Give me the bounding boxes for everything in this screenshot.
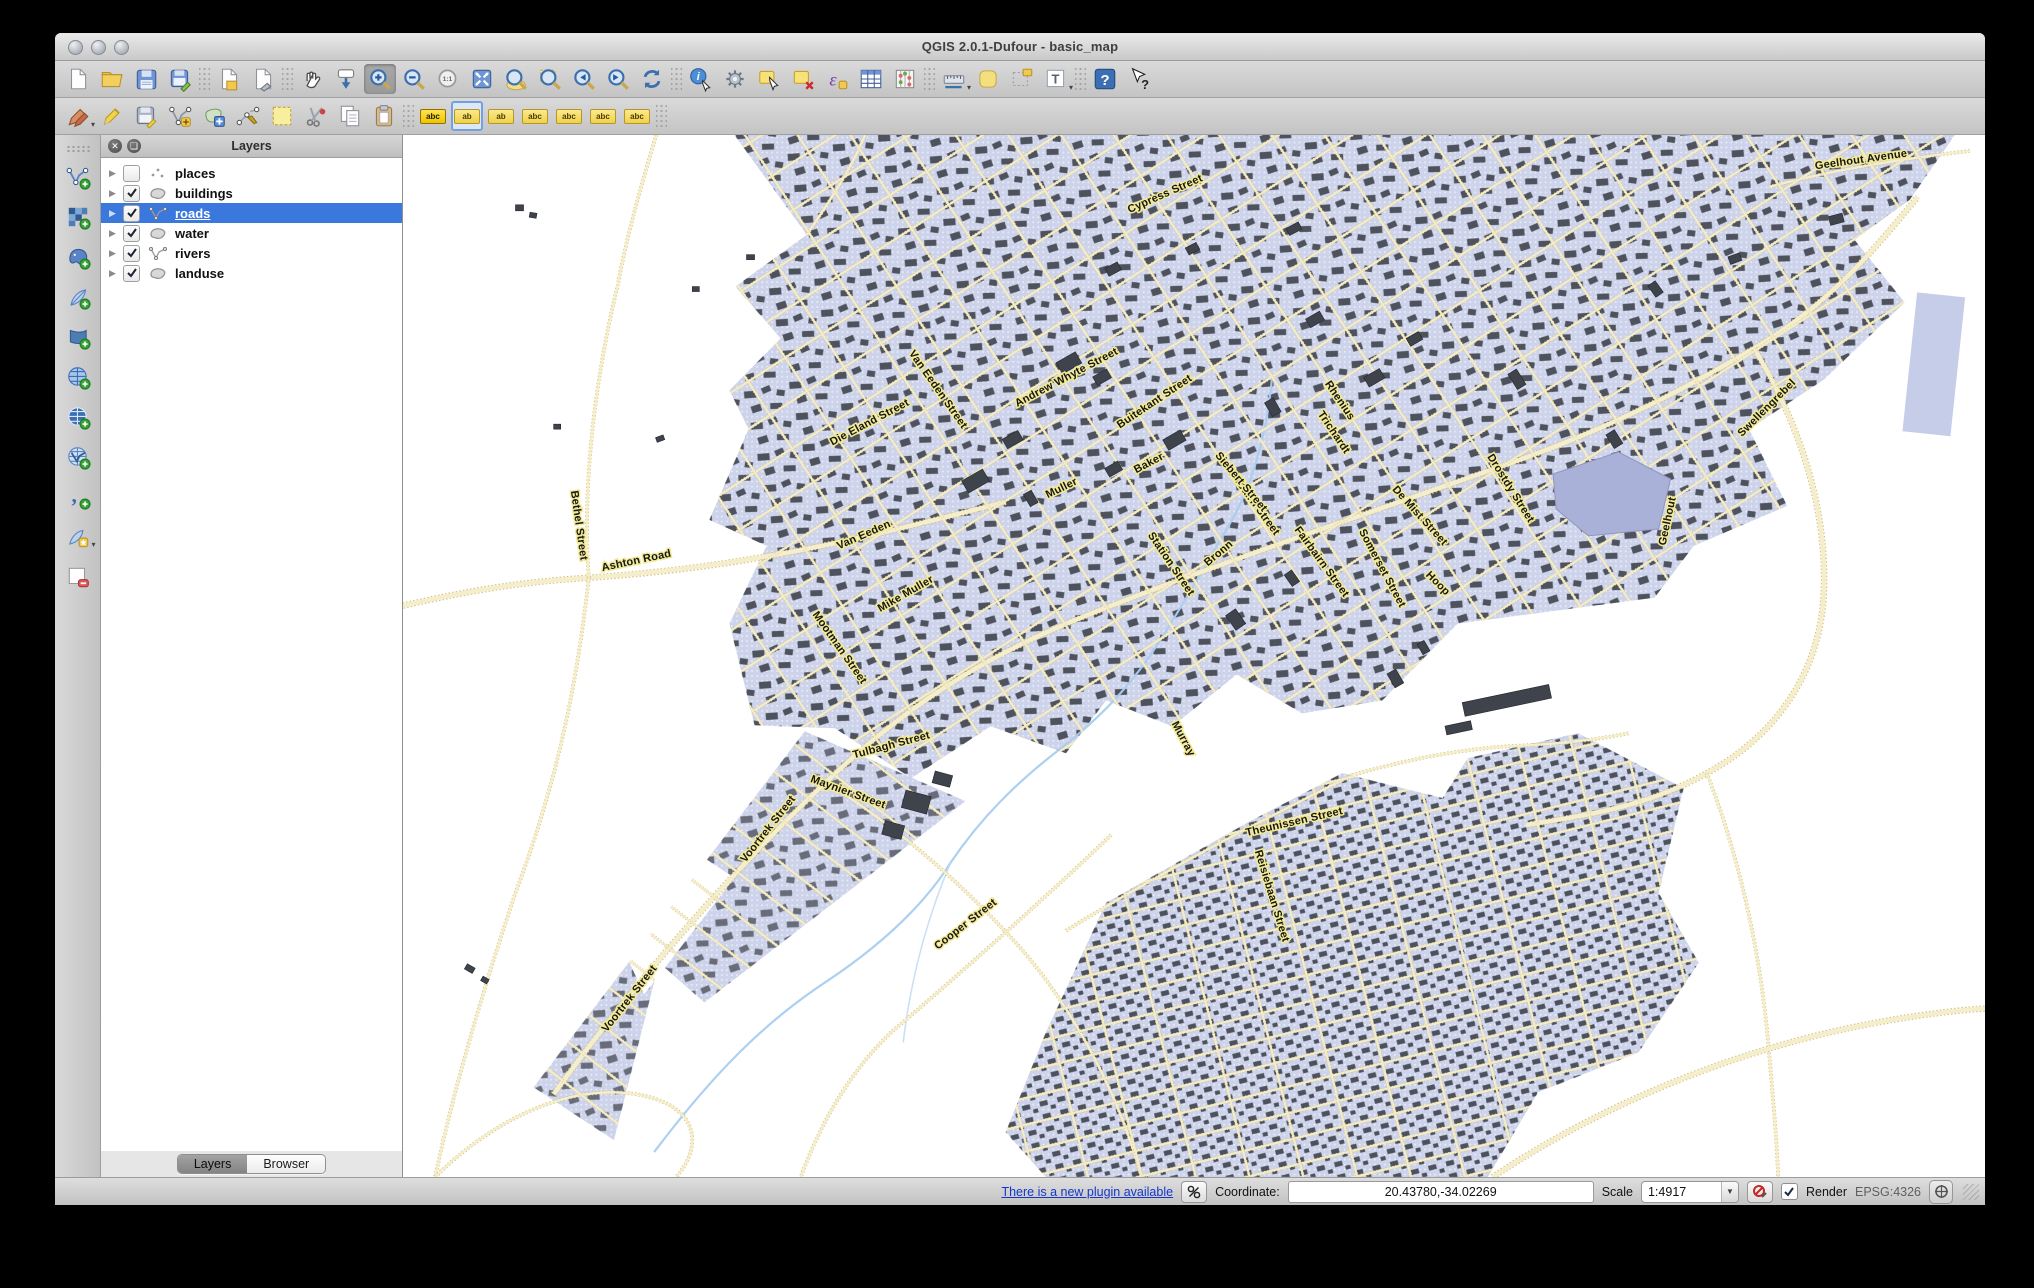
- zoom-native-icon[interactable]: 1:1: [432, 64, 464, 94]
- layer-visibility-checkbox[interactable]: [123, 185, 140, 202]
- layer-row-water[interactable]: ▶water: [101, 223, 402, 243]
- toolbar-separator: [924, 66, 935, 92]
- toggle-editing-icon[interactable]: [96, 101, 128, 131]
- layer-name: rivers: [175, 246, 210, 261]
- main-toolbar: 1:1iε▾T▾??: [55, 61, 1985, 98]
- svg-text:ε: ε: [829, 70, 837, 90]
- layer-visibility-checkbox[interactable]: [123, 245, 140, 262]
- new-shapefile-layer-icon[interactable]: ▾: [60, 519, 96, 555]
- combo-arrow-icon[interactable]: ▼: [1721, 1182, 1738, 1202]
- digitizing-label-toolbar: ▾abcabababcabcabcabc: [55, 98, 1985, 135]
- svg-text:?: ?: [1141, 77, 1149, 92]
- move-feature-icon[interactable]: [198, 101, 230, 131]
- current-edits-icon[interactable]: ▾: [62, 101, 94, 131]
- labeling-options-icon[interactable]: abc: [417, 101, 449, 131]
- measure-icon[interactable]: ▾: [938, 64, 970, 94]
- expand-triangle-icon[interactable]: ▶: [109, 228, 123, 239]
- remove-layer-icon[interactable]: [60, 559, 96, 595]
- zoom-window-button[interactable]: [114, 40, 129, 55]
- zoom-next-icon[interactable]: [602, 64, 634, 94]
- label-properties-icon[interactable]: abc: [621, 101, 653, 131]
- layer-row-rivers[interactable]: ▶rivers: [101, 243, 402, 263]
- toolbar-separator: [656, 103, 667, 129]
- scale-value: 1:4917: [1642, 1185, 1721, 1199]
- manage-layers-toolbar: ,▾: [55, 135, 101, 1177]
- toolbar-separator: [403, 103, 414, 129]
- tab-layers[interactable]: Layers: [178, 1155, 248, 1173]
- expand-triangle-icon[interactable]: ▶: [109, 248, 123, 259]
- node-tool-icon[interactable]: [232, 101, 264, 131]
- scale-combobox[interactable]: 1:4917 ▼: [1641, 1181, 1739, 1203]
- stop-render-icon[interactable]: [1747, 1181, 1773, 1203]
- new-composer-icon[interactable]: [213, 64, 245, 94]
- traffic-lights: [68, 40, 129, 55]
- attribute-table-icon[interactable]: [855, 64, 887, 94]
- layer-tree: ▶places▶buildings▶roads▶water▶rivers▶lan…: [101, 158, 402, 1151]
- layer-visibility-checkbox[interactable]: [123, 165, 140, 182]
- svg-text:1:1: 1:1: [443, 76, 453, 83]
- layer-row-places[interactable]: ▶places: [101, 163, 402, 183]
- layer-name: landuse: [175, 266, 224, 281]
- layer-name: buildings: [175, 186, 233, 201]
- expand-triangle-icon[interactable]: ▶: [109, 208, 123, 219]
- render-label: Render: [1806, 1185, 1847, 1199]
- layer-row-roads[interactable]: ▶roads: [101, 203, 402, 223]
- field-calculator-icon[interactable]: [889, 64, 921, 94]
- crs-status-icon[interactable]: [1929, 1180, 1953, 1204]
- help-icon[interactable]: ?: [1089, 64, 1121, 94]
- layers-dock: ✕ ❏ Layers ▶places▶buildings▶roads▶water…: [101, 135, 403, 1177]
- label-tag-glyph: abc: [624, 109, 650, 124]
- layers-panel-title: Layers: [101, 139, 402, 153]
- toolbar-separator: [1075, 66, 1086, 92]
- close-window-button[interactable]: [68, 40, 83, 55]
- label-tag-glyph: abc: [590, 109, 616, 124]
- label-tag-glyph: abc: [556, 109, 582, 124]
- coordinate-input[interactable]: [1288, 1181, 1594, 1203]
- layer-visibility-checkbox[interactable]: [123, 265, 140, 282]
- copy-features-icon[interactable]: [334, 101, 366, 131]
- expand-triangle-icon[interactable]: ▶: [109, 268, 123, 279]
- polygon-geometry-icon: [147, 186, 169, 200]
- zoom-out-icon[interactable]: [398, 64, 430, 94]
- close-panel-button[interactable]: ✕: [108, 139, 122, 153]
- new-bookmark-icon[interactable]: [972, 64, 1004, 94]
- add-wfs-layer-icon[interactable]: [60, 439, 96, 475]
- save-project-icon[interactable]: [130, 64, 162, 94]
- add-mssql-layer-icon[interactable]: [60, 319, 96, 355]
- add-spatialite-layer-icon[interactable]: [60, 279, 96, 315]
- layer-visibility-checkbox[interactable]: [123, 225, 140, 242]
- toolbar-grip[interactable]: [66, 145, 90, 153]
- toolbar-separator: [199, 66, 210, 92]
- point-geometry-icon: [147, 166, 169, 180]
- polygon-geometry-icon: [147, 266, 169, 280]
- layer-name: places: [175, 166, 215, 181]
- open-project-icon[interactable]: [96, 64, 128, 94]
- pan-to-selection-icon[interactable]: [330, 64, 362, 94]
- add-raster-layer-icon[interactable]: [60, 199, 96, 235]
- add-delimited-text-icon[interactable]: ,: [60, 479, 96, 515]
- delete-selected-icon[interactable]: [266, 101, 298, 131]
- select-features-icon[interactable]: [753, 64, 785, 94]
- label-tag-glyph: abc: [522, 109, 548, 124]
- expand-triangle-icon[interactable]: ▶: [109, 168, 123, 179]
- layers-panel-header: ✕ ❏ Layers: [101, 135, 402, 158]
- text-annotation-icon[interactable]: T▾: [1040, 64, 1072, 94]
- add-wcs-layer-icon[interactable]: [60, 399, 96, 435]
- pan-map-icon[interactable]: [296, 64, 328, 94]
- line-geometry-icon: [147, 246, 169, 260]
- toolbar-separator: [282, 66, 293, 92]
- identify-icon[interactable]: i: [685, 64, 717, 94]
- select-by-expression-icon[interactable]: ε: [821, 64, 853, 94]
- label-tag-glyph: ab: [488, 109, 514, 124]
- float-panel-button[interactable]: ❏: [127, 139, 141, 153]
- expand-triangle-icon[interactable]: ▶: [109, 188, 123, 199]
- title-bar[interactable]: QGIS 2.0.1-Dufour - basic_map: [55, 33, 1985, 61]
- dock-tabs: Layers Browser: [101, 1151, 402, 1177]
- rotate-label-icon[interactable]: ab: [485, 101, 517, 131]
- composer-manager-icon[interactable]: [247, 64, 279, 94]
- window-title: QGIS 2.0.1-Dufour - basic_map: [922, 39, 1119, 54]
- resize-grip[interactable]: [1963, 1184, 1979, 1200]
- svg-text:,: ,: [71, 484, 76, 507]
- minimize-window-button[interactable]: [91, 40, 106, 55]
- layer-visibility-checkbox[interactable]: [123, 205, 140, 222]
- zoom-in-icon[interactable]: [364, 64, 396, 94]
- map-svg[interactable]: Geelhout AvenueAshton RoadBethel StreetV…: [403, 135, 1985, 1177]
- zoom-to-layer-icon[interactable]: [500, 64, 532, 94]
- layer-name: water: [175, 226, 209, 241]
- zoom-to-selection-icon[interactable]: [534, 64, 566, 94]
- tab-browser[interactable]: Browser: [247, 1155, 325, 1173]
- zoom-full-icon[interactable]: [466, 64, 498, 94]
- polygon-geometry-icon: [147, 226, 169, 240]
- refresh-icon[interactable]: [636, 64, 668, 94]
- plugin-available-link[interactable]: There is a new plugin available: [1001, 1185, 1173, 1199]
- scale-label: Scale: [1602, 1185, 1633, 1199]
- save-edits-icon[interactable]: [130, 101, 162, 131]
- crs-status-label: EPSG:4326: [1855, 1185, 1921, 1199]
- paste-features-icon[interactable]: [368, 101, 400, 131]
- add-wms-layer-icon[interactable]: [60, 359, 96, 395]
- add-vector-layer-icon[interactable]: [60, 159, 96, 195]
- label-tag-glyph: abc: [420, 109, 446, 124]
- layer-row-buildings[interactable]: ▶buildings: [101, 183, 402, 203]
- line-geometry-icon: [147, 206, 169, 220]
- toolbar-separator: [671, 66, 682, 92]
- zoom-last-icon[interactable]: [568, 64, 600, 94]
- svg-text:?: ?: [1100, 72, 1109, 89]
- move-label-icon[interactable]: ab: [451, 101, 483, 131]
- layer-name: roads: [175, 206, 210, 221]
- new-project-icon[interactable]: [62, 64, 94, 94]
- render-checkbox[interactable]: [1781, 1183, 1798, 1200]
- deselect-features-icon[interactable]: [787, 64, 819, 94]
- run-feature-action-icon[interactable]: [719, 64, 751, 94]
- plugin-manager-icon[interactable]: [1181, 1181, 1207, 1203]
- save-project-as-icon[interactable]: [164, 64, 196, 94]
- add-postgis-layer-icon[interactable]: [60, 239, 96, 275]
- label-tag-glyph: ab: [454, 109, 480, 124]
- add-feature-icon[interactable]: [164, 101, 196, 131]
- show-hidden-labels-icon[interactable]: abc: [553, 101, 585, 131]
- change-label-icon[interactable]: abc: [587, 101, 619, 131]
- map-canvas[interactable]: Geelhout AvenueAshton RoadBethel StreetV…: [403, 135, 1985, 1177]
- pin-labels-icon[interactable]: abc: [519, 101, 551, 131]
- status-bar: There is a new plugin available Coordina…: [55, 1177, 1985, 1205]
- coordinate-label: Coordinate:: [1215, 1185, 1280, 1199]
- svg-text:T: T: [1051, 71, 1059, 86]
- show-bookmarks-icon[interactable]: [1006, 64, 1038, 94]
- whats-this-icon[interactable]: ?: [1123, 64, 1155, 94]
- qgis-window: QGIS 2.0.1-Dufour - basic_map 1:1iε▾T▾??…: [55, 33, 1985, 1205]
- cut-features-icon[interactable]: [300, 101, 332, 131]
- layer-row-landuse[interactable]: ▶landuse: [101, 263, 402, 283]
